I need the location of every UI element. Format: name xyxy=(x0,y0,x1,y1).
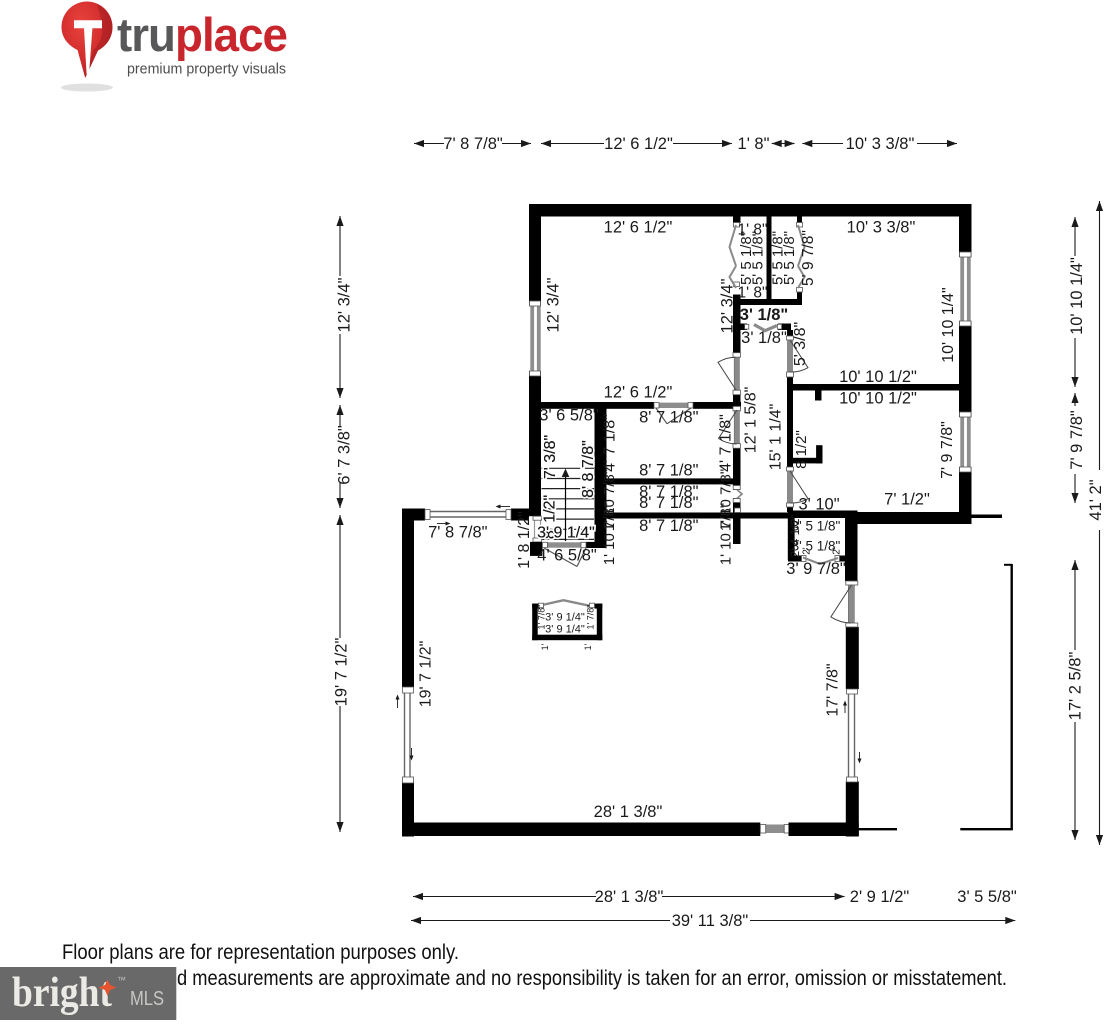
svg-text:3' 9 1/4": 3' 9 1/4" xyxy=(537,525,595,542)
svg-text:truplace: truplace xyxy=(117,8,287,61)
svg-text:12' 3/4": 12' 3/4" xyxy=(545,277,563,332)
svg-text:4' 7 1/8": 4' 7 1/8" xyxy=(602,414,619,472)
svg-text:3' 10": 3' 10" xyxy=(798,496,839,514)
svg-text:12' 6 1/2": 12' 6 1/2" xyxy=(604,135,673,153)
svg-text:12' 3/4": 12' 3/4" xyxy=(336,277,354,332)
svg-text:4' 6 5/8": 4' 6 5/8" xyxy=(537,547,597,565)
svg-text:bright: bright xyxy=(12,970,112,1016)
svg-text:1': 1' xyxy=(583,643,593,650)
svg-text:8' 7 1/8": 8' 7 1/8" xyxy=(639,462,699,480)
svg-text:7' 8 7/8": 7' 8 7/8" xyxy=(443,135,503,153)
svg-text:™: ™ xyxy=(117,975,126,985)
svg-text:5' 3/8": 5' 3/8" xyxy=(792,322,809,366)
svg-text:MLS: MLS xyxy=(130,988,164,1010)
svg-text:1' 10 7/8": 1' 10 7/8" xyxy=(601,503,618,565)
svg-text:8 1/2": 8 1/2" xyxy=(793,430,810,469)
svg-text:41' 2": 41' 2" xyxy=(1087,479,1105,520)
svg-text:15' 1 1/4": 15' 1 1/4" xyxy=(768,404,785,471)
svg-text:10' 3 3/8": 10' 3 3/8" xyxy=(846,135,915,153)
svg-text:6' 7 3/8": 6' 7 3/8" xyxy=(336,425,354,485)
svg-text:39' 11 3/8": 39' 11 3/8" xyxy=(672,912,749,930)
svg-text:28' 1 3/8": 28' 1 3/8" xyxy=(594,803,663,821)
svg-text:7' 1/2": 7' 1/2" xyxy=(884,491,930,509)
svg-text:8' 8 7/8": 8' 8 7/8" xyxy=(580,440,597,498)
svg-text:7' 9 7/8": 7' 9 7/8" xyxy=(939,421,956,479)
svg-text:10' 10 1/2": 10' 10 1/2" xyxy=(839,390,917,408)
svg-text:7' 8 7/8": 7' 8 7/8" xyxy=(428,523,488,541)
svg-text:3' 1/8": 3' 1/8" xyxy=(740,306,788,324)
svg-text:19' 7 1/2": 19' 7 1/2" xyxy=(333,638,351,707)
svg-text:5' 5 1/8": 5' 5 1/8" xyxy=(781,231,798,285)
svg-text:3' 6 5/8": 3' 6 5/8" xyxy=(539,407,599,425)
svg-text:28' 1 3/8": 28' 1 3/8" xyxy=(595,888,664,906)
svg-text:12' 6 1/2": 12' 6 1/2" xyxy=(604,384,673,402)
svg-text:1' 7/8": 1' 7/8" xyxy=(586,605,596,630)
svg-text:3' 9 1/4": 3' 9 1/4" xyxy=(545,623,585,635)
svg-text:1' 7/8": 1' 7/8" xyxy=(537,605,547,630)
svg-text:3' 9 7/8": 3' 9 7/8" xyxy=(786,560,846,578)
svg-text:12' 6 1/2": 12' 6 1/2" xyxy=(604,218,673,236)
svg-text:8' 7 1/8": 8' 7 1/8" xyxy=(639,517,699,535)
svg-text:1' 10 7/8": 1' 10 7/8" xyxy=(718,503,735,565)
svg-text:1' 8": 1' 8" xyxy=(738,135,770,153)
svg-text:d measurements are approximate: d measurements are approximate and no re… xyxy=(177,966,1007,990)
svg-text:3' 5 5/8": 3' 5 5/8" xyxy=(957,888,1017,906)
svg-text:8' 7 1/8": 8' 7 1/8" xyxy=(639,409,699,427)
svg-text:1' 8": 1' 8" xyxy=(737,284,767,301)
svg-text:10' 10 1/4": 10' 10 1/4" xyxy=(940,287,957,362)
svg-text:12' 1 5/8": 12' 1 5/8" xyxy=(743,387,760,454)
svg-text:1' 8 1/2": 1' 8 1/2" xyxy=(516,511,533,569)
svg-text:1': 1' xyxy=(540,643,550,650)
svg-text:10' 10 1/2": 10' 10 1/2" xyxy=(839,368,917,386)
svg-text:5' 9 7/8": 5' 9 7/8" xyxy=(800,230,817,286)
svg-text:Floor plans are for representa: Floor plans are for representation purpo… xyxy=(62,940,459,964)
svg-text:2' 4 1/2": 2' 4 1/2" xyxy=(788,514,802,557)
svg-text:10' 10 1/4": 10' 10 1/4" xyxy=(1068,257,1086,335)
svg-text:7' 3/8": 7' 3/8" xyxy=(542,435,559,479)
svg-text:4' 7 1/8": 4' 7 1/8" xyxy=(718,414,735,472)
svg-text:10' 3 3/8": 10' 3 3/8" xyxy=(847,219,916,237)
svg-text:2': 2' xyxy=(831,547,842,555)
svg-text:2' 9 1/2": 2' 9 1/2" xyxy=(850,888,910,906)
svg-text:2': 2' xyxy=(801,547,812,555)
svg-text:premium property visuals: premium property visuals xyxy=(127,61,286,78)
svg-text:3' 1/8": 3' 1/8" xyxy=(741,329,787,347)
svg-text:7' 9 7/8": 7' 9 7/8" xyxy=(1068,410,1086,470)
svg-text:8' 7 1/8": 8' 7 1/8" xyxy=(639,494,699,512)
svg-text:17' 7/8": 17' 7/8" xyxy=(825,663,842,716)
svg-text:17' 2 5/8": 17' 2 5/8" xyxy=(1067,652,1085,721)
svg-text:19' 7 1/2": 19' 7 1/2" xyxy=(418,641,435,708)
svg-text:3' 9 1/4": 3' 9 1/4" xyxy=(545,611,585,623)
svg-text:5' 5 1/8": 5' 5 1/8" xyxy=(750,231,767,285)
